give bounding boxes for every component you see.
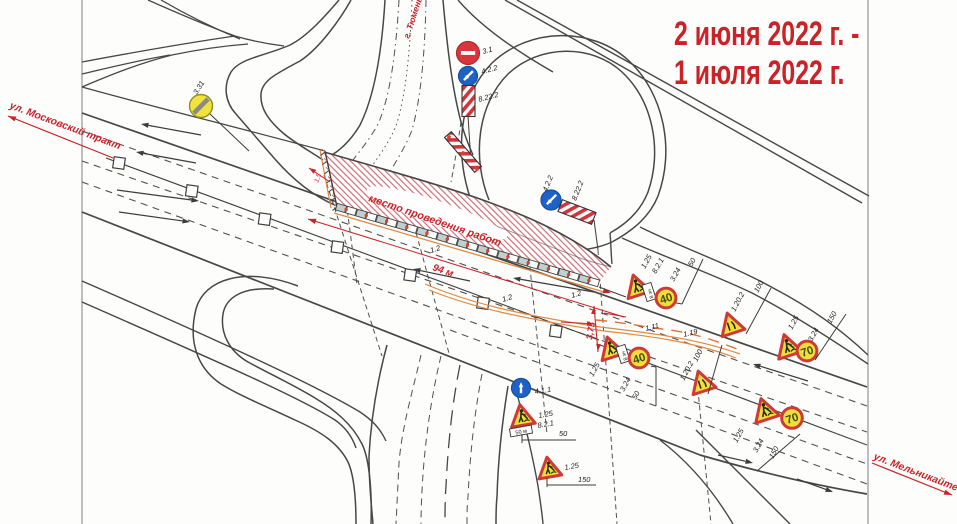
svg-text:150: 150	[578, 475, 591, 484]
svg-text:50: 50	[559, 429, 568, 438]
svg-text:2 июня 2022 г. -: 2 июня 2022 г. -	[674, 15, 859, 53]
svg-text:1 июля 2022 г.: 1 июля 2022 г.	[674, 54, 844, 92]
